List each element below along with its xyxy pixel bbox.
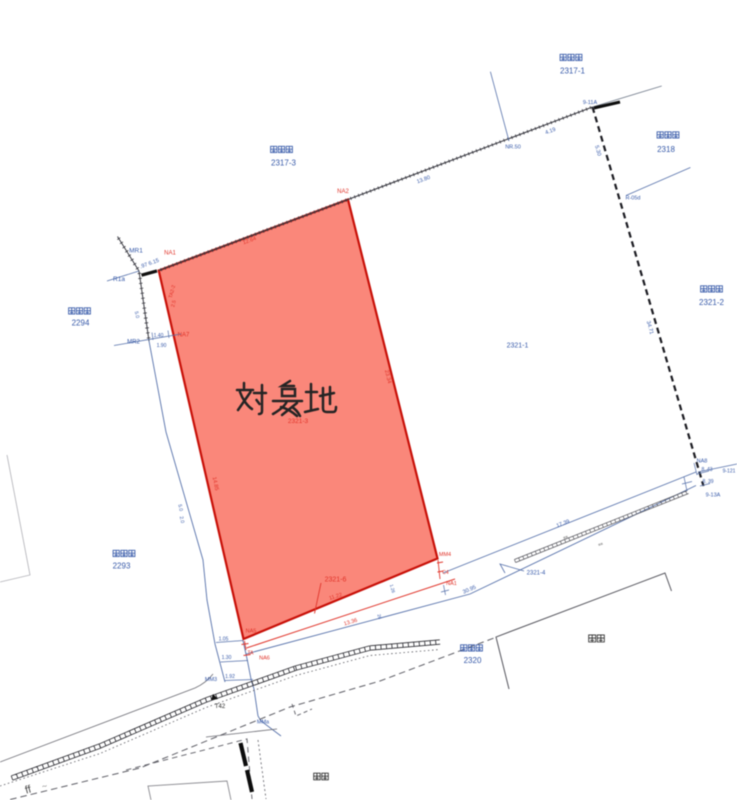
- svg-text:MR2: MR2: [127, 340, 140, 346]
- svg-text:1.90: 1.90: [157, 343, 167, 349]
- svg-text:2321-2: 2321-2: [699, 298, 724, 307]
- svg-text:MM3: MM3: [205, 677, 217, 683]
- svg-text:NA8: NA8: [697, 459, 708, 465]
- svg-text:NA1: NA1: [164, 251, 176, 257]
- svg-text:T42: T42: [215, 704, 226, 710]
- svg-text:2321-3: 2321-3: [288, 418, 309, 425]
- svg-text:2317-1: 2317-1: [560, 67, 585, 76]
- svg-text:NA7: NA7: [178, 333, 190, 339]
- svg-text:2321-4: 2321-4: [527, 571, 546, 577]
- svg-text:2318: 2318: [657, 145, 675, 154]
- svg-text:R-05d: R-05d: [626, 196, 641, 202]
- svg-text:NR.50: NR.50: [505, 145, 521, 151]
- svg-text:9-11A: 9-11A: [583, 100, 598, 106]
- svg-text:MMa: MMa: [257, 720, 270, 726]
- svg-text:NA2: NA2: [337, 189, 349, 195]
- svg-text:2321-6: 2321-6: [325, 577, 347, 584]
- svg-text:9-121: 9-121: [723, 469, 736, 475]
- svg-text:R1a: R1a: [113, 276, 125, 283]
- svg-text:NA1: NA1: [446, 581, 457, 587]
- svg-text:2293: 2293: [113, 562, 131, 571]
- svg-text:NA6: NA6: [259, 656, 270, 662]
- svg-text:9-13A: 9-13A: [706, 493, 721, 499]
- svg-text:2317-3: 2317-3: [271, 159, 296, 168]
- svg-text:NA5: NA5: [246, 629, 257, 635]
- svg-text:2321-1: 2321-1: [507, 343, 529, 350]
- svg-text:1.40: 1.40: [154, 333, 164, 339]
- svg-text:1.05: 1.05: [219, 637, 229, 643]
- svg-text:TA: TA: [247, 651, 254, 657]
- svg-text:MM4: MM4: [439, 552, 451, 558]
- svg-text:MR1: MR1: [129, 248, 143, 255]
- svg-text:1.30: 1.30: [222, 655, 232, 661]
- svg-text:2294: 2294: [72, 319, 90, 328]
- svg-text:2320: 2320: [464, 656, 482, 665]
- svg-text:1.92: 1.92: [225, 674, 235, 680]
- svg-text:C4: C4: [442, 570, 449, 576]
